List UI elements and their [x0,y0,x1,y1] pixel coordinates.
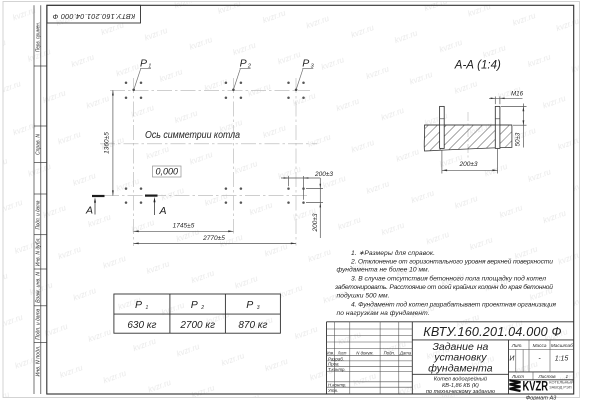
svg-text:200±3: 200±3 [314,171,333,178]
svg-text:по техническому заданию: по техническому заданию [426,389,496,395]
svg-text:Котел водогрейный: Котел водогрейный [434,376,487,383]
svg-text:870 кг: 870 кг [238,320,267,331]
svg-text:Разраб.: Разраб. [328,356,344,361]
svg-text:подушки 500 мм.: подушки 500 мм. [337,292,390,300]
svg-text:забетонировать. Расстояние от: забетонировать. Расстояние от осей крайн… [334,283,553,291]
svg-text:Т.контр.: Т.контр. [328,367,346,372]
svg-text:КВТУ.160.201.04.000 Ф: КВТУ.160.201.04.000 Ф [52,12,135,21]
svg-text:630 кг: 630 кг [127,320,156,331]
svg-text:Лист: Лист [337,351,347,356]
svg-text:A: A [159,205,167,217]
svg-text:Подп.: Подп. [384,351,395,356]
svg-text:2. Отклонение от горизонтально: 2. Отклонение от горизонтального уровня … [350,257,553,265]
svg-text:по нагрузкам на фундамент.: по нагрузкам на фундамент. [337,309,430,317]
svg-text:P: P [140,57,147,69]
svg-text:2770±5: 2770±5 [202,235,225,242]
svg-text:3. В случае отсутствия бетонно: 3. В случае отсутствия бетонного пола пл… [351,275,546,283]
svg-text:Инв. N подл.: Инв. N подл. [35,346,41,377]
svg-text:P: P [246,299,253,311]
svg-text:P: P [302,57,309,69]
svg-text:Взам. инв. N: Взам. инв. N [35,271,41,302]
svg-text:1:15: 1:15 [555,356,569,363]
svg-text:фундамента не более 10 мм.: фундамента не более 10 мм. [337,266,430,274]
svg-text:фундамента: фундамента [428,363,493,375]
svg-text:Н.контр.: Н.контр. [328,383,347,388]
svg-text:1360±5: 1360±5 [103,132,110,154]
svg-text:Подп. и дата: Подп. и дата [35,308,41,339]
svg-text:А-А (1:4): А-А (1:4) [454,60,501,72]
svg-text:Масса: Масса [533,343,547,348]
svg-text:1: 1 [146,305,149,311]
svg-text:2: 2 [200,305,204,311]
svg-text:2700 кг: 2700 кг [179,320,215,331]
svg-text:Пров.: Пров. [328,362,340,367]
svg-text:3: 3 [257,305,260,311]
svg-text:1: 1 [565,374,568,379]
svg-text:A: A [85,205,93,217]
svg-text:KVZR: KVZR [523,378,549,393]
svg-text:Формат А3: Формат А3 [526,395,557,400]
svg-text:50±3: 50±3 [515,132,522,146]
svg-text:КВТУ.160.201.04.000 Ф: КВТУ.160.201.04.000 Ф [423,325,562,339]
svg-text:Инв. N дубл.: Инв. N дубл. [35,237,41,266]
svg-text:1. ∗Размеры для справок.: 1. ∗Размеры для справок. [351,249,435,257]
svg-text:Изм.: Изм. [327,351,334,356]
svg-text:КВ-1,86 КБ (К): КВ-1,86 КБ (К) [442,383,479,389]
svg-text:М16: М16 [511,91,524,98]
svg-text:0,000: 0,000 [156,167,179,177]
svg-text:Масштаб: Масштаб [551,343,573,348]
svg-text:Перв. примен.: Перв. примен. [35,22,41,52]
svg-text:4. Фундамент под котел разраба: 4. Фундамент под котел разрабатывает про… [351,300,556,308]
svg-text:Утв.: Утв. [328,388,338,393]
svg-text:ЗАВОД РЭП: ЗАВОД РЭП [549,384,571,389]
svg-text:Ось симметрии котла: Ось симметрии котла [145,130,240,141]
svg-text:1745±5: 1745±5 [173,223,195,230]
svg-text:Подп. и дата: Подп. и дата [35,200,41,229]
svg-text:200±3: 200±3 [312,213,319,232]
svg-text:N докум.: N докум. [356,351,373,356]
svg-text:Лит.: Лит. [511,343,523,348]
svg-text:P: P [191,299,198,311]
svg-text:P: P [240,57,247,69]
svg-text:P: P [135,299,142,311]
svg-text:200±3: 200±3 [458,161,477,168]
svg-text:Дата: Дата [399,351,412,356]
svg-text:Справ. N: Справ. N [35,134,41,155]
